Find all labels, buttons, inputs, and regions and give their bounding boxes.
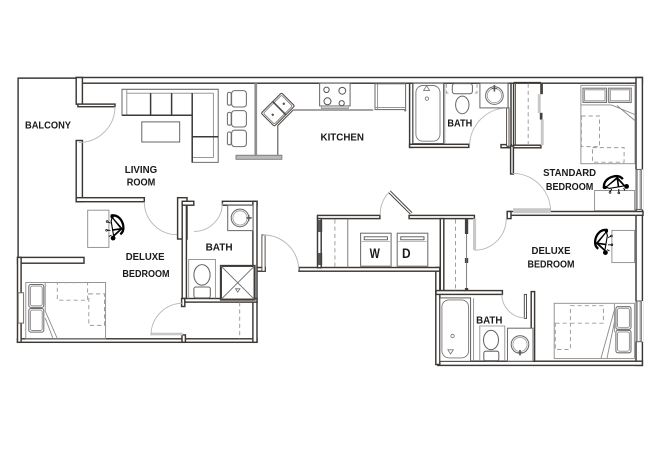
- svg-text:BALCONY: BALCONY: [25, 121, 71, 132]
- svg-text:D: D: [402, 246, 411, 261]
- svg-text:W: W: [370, 246, 380, 261]
- svg-text:DELUXE: DELUXE: [532, 246, 571, 257]
- svg-text:ROOM: ROOM: [127, 177, 156, 188]
- svg-text:BEDROOM: BEDROOM: [528, 260, 575, 271]
- svg-text:BEDROOM: BEDROOM: [122, 269, 169, 280]
- svg-text:BATH: BATH: [206, 243, 233, 254]
- svg-text:BATH: BATH: [447, 119, 472, 130]
- svg-text:LIVING: LIVING: [125, 165, 157, 176]
- svg-text:BEDROOM: BEDROOM: [546, 182, 594, 193]
- svg-text:KITCHEN: KITCHEN: [321, 133, 365, 144]
- svg-text:STANDARD: STANDARD: [543, 168, 596, 179]
- svg-text:DELUXE: DELUXE: [126, 252, 165, 263]
- svg-text:BATH: BATH: [476, 316, 502, 327]
